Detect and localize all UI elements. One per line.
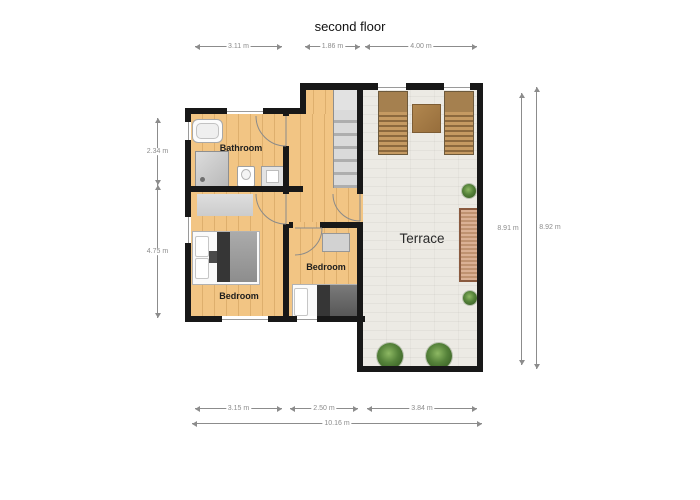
- dimension-label: 10.16 m: [322, 420, 351, 428]
- dimension-label: 8.92 m: [537, 224, 562, 232]
- dimension-bottom-1: 3.15 m: [195, 408, 282, 409]
- dimension-right-2: 8.92 m: [536, 87, 537, 369]
- dimension-left-2: 4.75 m: [157, 185, 158, 318]
- dimension-label: 2.34 m: [145, 148, 170, 156]
- bedroom-left-label: Bedroom: [203, 291, 275, 301]
- dimension-right-1: 8.91 m: [521, 93, 522, 365]
- dimension-bottom-3: 3.84 m: [367, 408, 477, 409]
- dimension-label: 3.15 m: [226, 405, 251, 413]
- dimension-label: 8.91 m: [495, 225, 520, 233]
- dimension-top-1: 3.11 m: [195, 46, 282, 47]
- dimension-top-2: 1.86 m: [305, 46, 360, 47]
- dimension-label: 4.00 m: [408, 43, 433, 51]
- dimension-left-1: 2.34 m: [157, 118, 158, 185]
- terrace-label: Terrace: [382, 231, 462, 246]
- dimension-label: 3.11 m: [226, 43, 251, 51]
- dimension-top-3: 4.00 m: [365, 46, 477, 47]
- dimension-label: 3.84 m: [409, 405, 434, 413]
- floor-plan-canvas: second floor: [0, 0, 700, 500]
- dimension-label: 1.86 m: [320, 43, 345, 51]
- bathroom-label: Bathroom: [205, 143, 277, 153]
- dimension-label: 2.50 m: [311, 405, 336, 413]
- bedroom-right-label: Bedroom: [290, 262, 362, 272]
- dimension-label: 4.75 m: [145, 248, 170, 256]
- dimension-bottom-2: 2.50 m: [290, 408, 358, 409]
- dimension-bottom-total: 10.16 m: [192, 423, 482, 424]
